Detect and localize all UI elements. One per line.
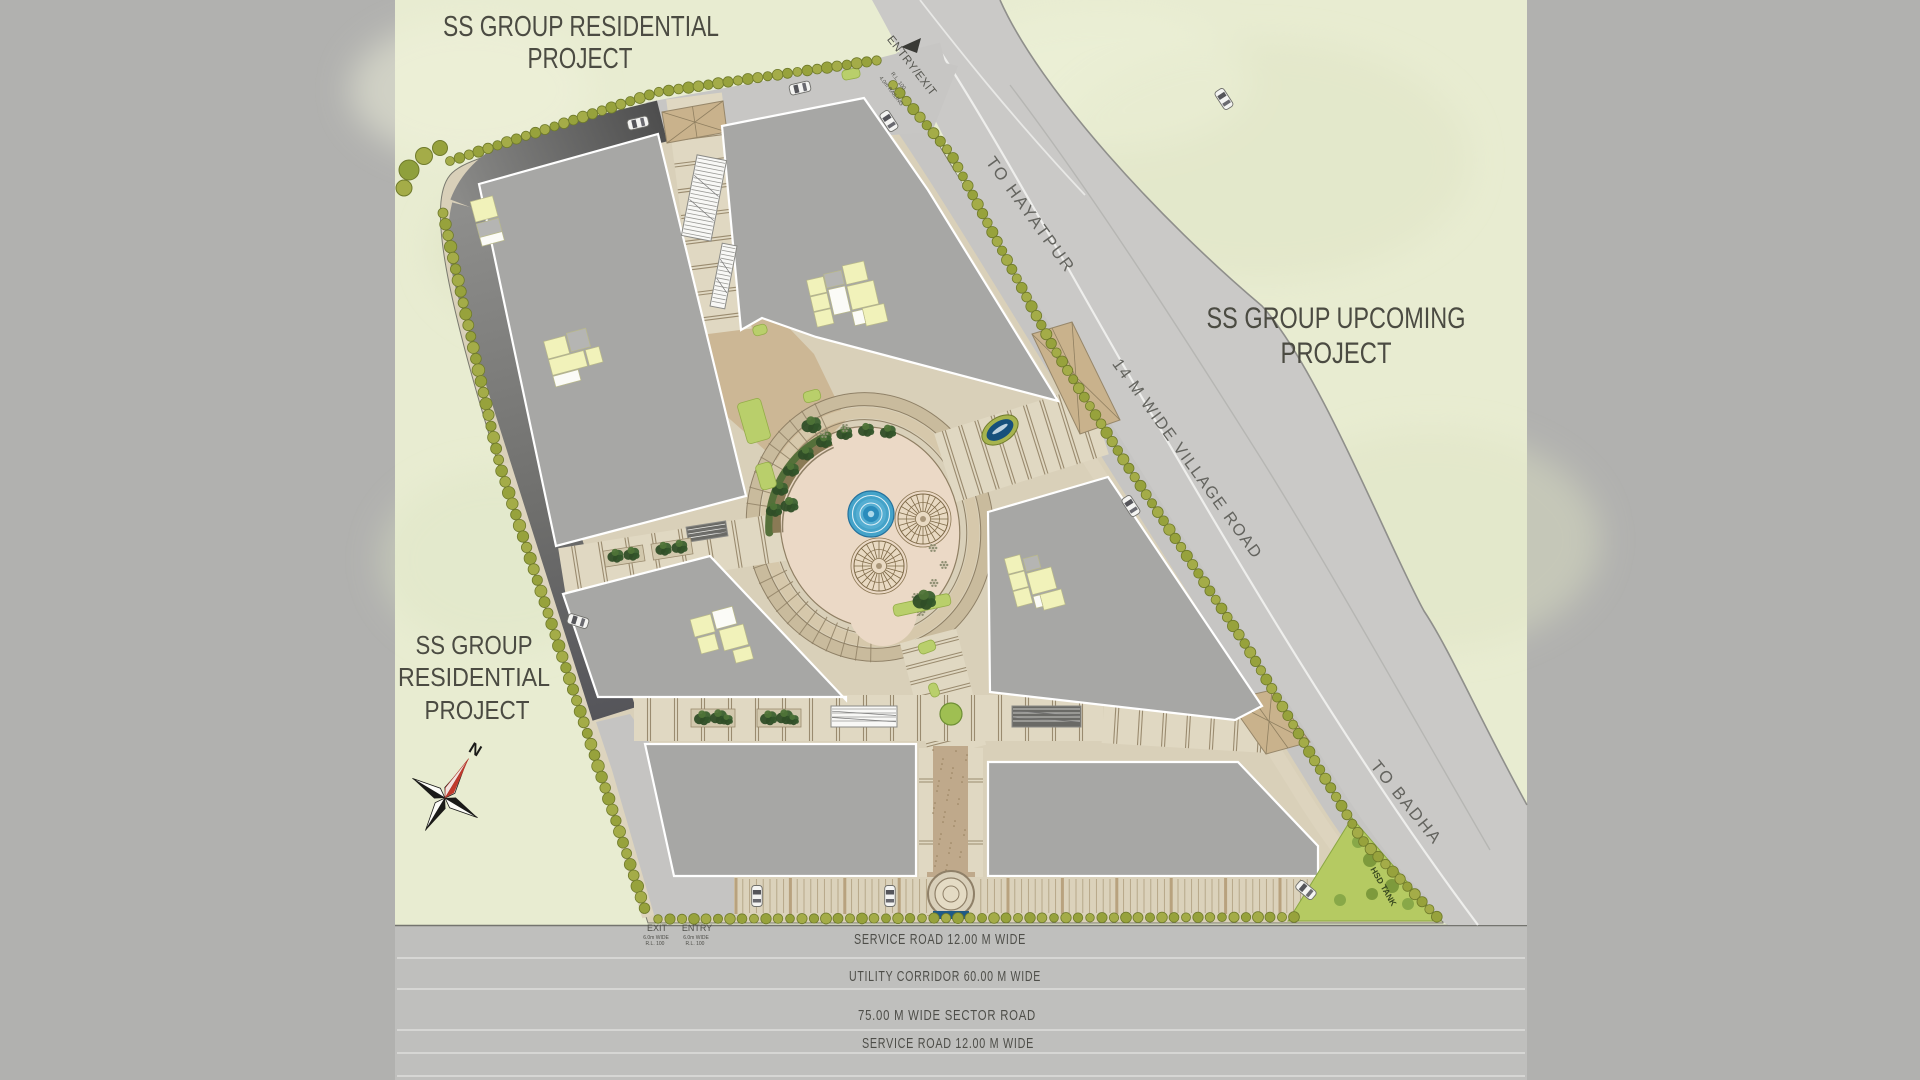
svg-text:SERVICE ROAD 12.00 M WIDE: SERVICE ROAD 12.00 M WIDE bbox=[862, 1035, 1034, 1052]
svg-text:PROJECT: PROJECT bbox=[528, 43, 633, 75]
svg-text:ENTRY: ENTRY bbox=[682, 923, 712, 933]
svg-text:R.L. 100: R.L. 100 bbox=[646, 941, 665, 947]
svg-text:SS GROUP RESIDENTIAL: SS GROUP RESIDENTIAL bbox=[443, 11, 719, 43]
svg-text:PROJECT: PROJECT bbox=[1281, 337, 1392, 370]
svg-text:EXIT: EXIT bbox=[647, 923, 668, 933]
svg-text:SS GROUP UPCOMING: SS GROUP UPCOMING bbox=[1207, 302, 1466, 335]
svg-text:75.00 M WIDE SECTOR ROAD: 75.00 M WIDE SECTOR ROAD bbox=[858, 1007, 1036, 1024]
svg-text:PROJECT: PROJECT bbox=[425, 695, 530, 725]
svg-text:RESIDENTIAL: RESIDENTIAL bbox=[398, 662, 550, 692]
svg-text:SS GROUP: SS GROUP bbox=[416, 630, 533, 660]
svg-text:R.L. 100: R.L. 100 bbox=[686, 941, 705, 947]
svg-text:UTILITY CORRIDOR 60.00 M WIDE: UTILITY CORRIDOR 60.00 M WIDE bbox=[849, 968, 1041, 985]
svg-text:SERVICE ROAD 12.00 M WIDE: SERVICE ROAD 12.00 M WIDE bbox=[854, 931, 1026, 948]
